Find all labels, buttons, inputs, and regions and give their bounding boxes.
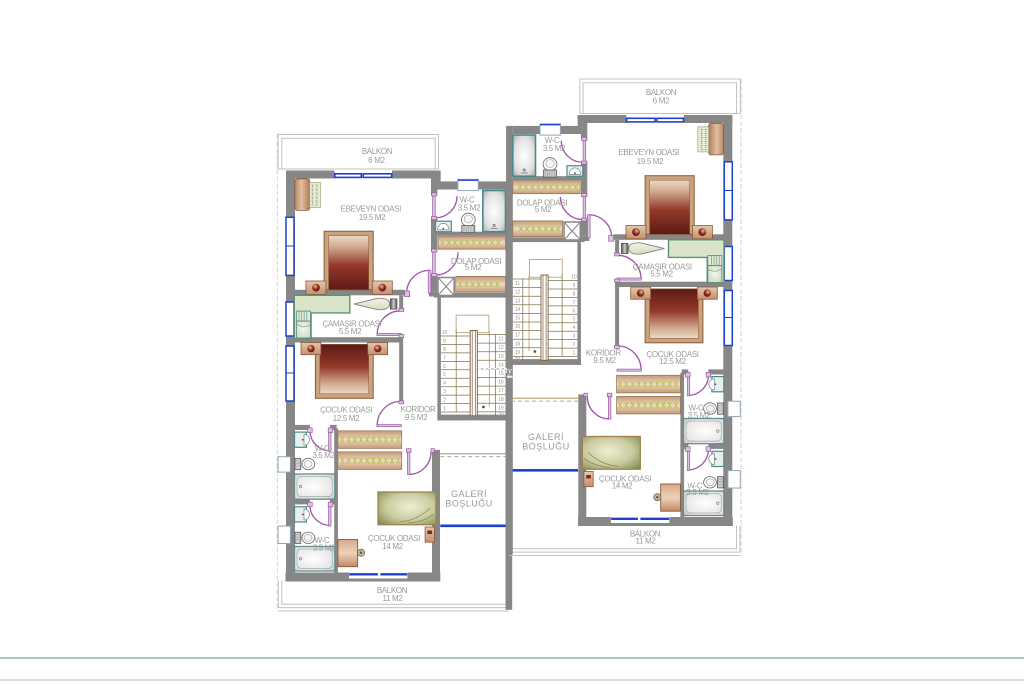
svg-text:6: 6 [443,364,446,370]
svg-text:3: 3 [572,334,575,340]
svg-text:7: 7 [443,355,446,361]
svg-text:12: 12 [515,290,521,296]
svg-text:19: 19 [498,405,504,411]
svg-text:16: 16 [515,324,521,330]
svg-text:3.5 M2: 3.5 M2 [312,451,335,460]
svg-text:20: 20 [515,357,521,363]
svg-text:3.5 M2: 3.5 M2 [688,411,711,420]
svg-text:9.5 M2: 9.5 M2 [593,356,616,365]
svg-text:5: 5 [572,317,575,323]
svg-text:6 M2: 6 M2 [368,156,385,165]
svg-text:11: 11 [498,337,503,343]
svg-text:15: 15 [515,316,521,322]
svg-text:ty: ty [506,365,513,375]
svg-text:9: 9 [443,338,446,344]
svg-text:12.5 M2: 12.5 M2 [333,414,360,423]
svg-text:14: 14 [498,362,504,368]
svg-text:3.5 M2: 3.5 M2 [313,544,336,553]
svg-text:GALERİ: GALERİ [528,432,564,442]
svg-text:10: 10 [442,330,448,336]
svg-text:EBEVEYN ODASI: EBEVEYN ODASI [341,205,401,214]
svg-text:BOŞLUĞU: BOŞLUĞU [445,499,493,509]
svg-text:3.5 M2: 3.5 M2 [686,488,709,497]
svg-text:2: 2 [572,342,575,348]
svg-text:11 M2: 11 M2 [383,594,404,603]
svg-text:GALERİ: GALERİ [451,489,487,499]
svg-text:8: 8 [572,291,575,297]
svg-text:10: 10 [571,275,577,281]
svg-text:12.5 M2: 12.5 M2 [659,357,686,366]
svg-text:19.5 M2: 19.5 M2 [359,213,386,222]
svg-text:11 M2: 11 M2 [636,537,657,546]
svg-text:9: 9 [572,283,575,289]
svg-text:14 M2: 14 M2 [612,482,633,491]
svg-text:7: 7 [572,300,575,306]
svg-text:5 M2: 5 M2 [465,263,482,272]
svg-text:14: 14 [515,307,521,313]
svg-text:18: 18 [515,341,521,347]
svg-text:9.5 M2: 9.5 M2 [405,413,428,422]
svg-text:3: 3 [443,389,446,395]
svg-text:1: 1 [572,351,575,357]
svg-text:14 M2: 14 M2 [382,542,403,551]
svg-text:BOŞLUĞU: BOŞLUĞU [522,442,570,452]
svg-text:18: 18 [498,397,504,403]
svg-text:6: 6 [572,308,575,314]
svg-text:5: 5 [443,372,446,378]
svg-text:16: 16 [498,380,504,386]
svg-text:5.5 M2: 5.5 M2 [650,270,673,279]
svg-text:15: 15 [498,371,504,377]
svg-text:19: 19 [515,350,521,356]
svg-text:6 M2: 6 M2 [653,97,670,106]
svg-text:4: 4 [572,325,575,331]
svg-text:ÇOCUK ODASI: ÇOCUK ODASI [320,406,372,415]
svg-text:3.5 M2: 3.5 M2 [543,144,566,153]
svg-text:5.5 M2: 5.5 M2 [339,327,362,336]
svg-text:8: 8 [443,347,446,353]
svg-text:5 M2: 5 M2 [535,205,552,214]
svg-text:17: 17 [515,333,521,339]
svg-text:1: 1 [443,406,446,412]
svg-text:19.5 M2: 19.5 M2 [637,157,664,166]
svg-text:4: 4 [443,381,446,387]
svg-text:13: 13 [515,298,521,304]
svg-text:13: 13 [498,354,504,360]
svg-text:2: 2 [443,398,446,404]
svg-text:17: 17 [498,388,504,394]
svg-text:BALKON: BALKON [362,147,393,156]
svg-text:11: 11 [515,281,520,287]
svg-text:3.5 M2: 3.5 M2 [458,204,481,213]
svg-text:20: 20 [498,412,504,418]
svg-text:12: 12 [498,345,504,351]
